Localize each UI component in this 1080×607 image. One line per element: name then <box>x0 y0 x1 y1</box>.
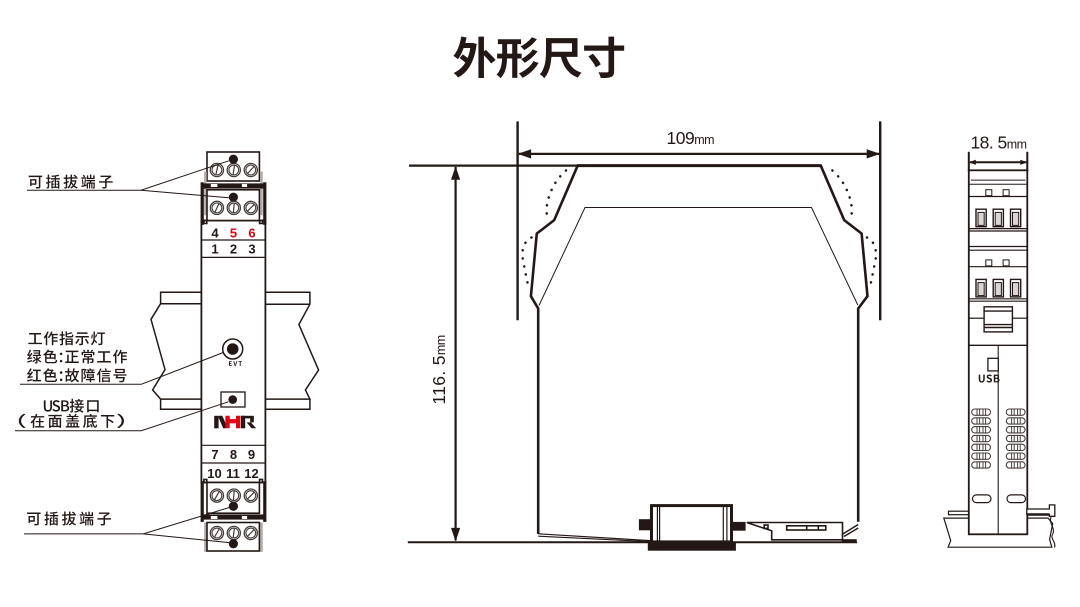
svg-text:116. 5mm: 116. 5mm <box>429 335 449 404</box>
svg-text:109mm: 109mm <box>667 128 715 148</box>
svg-text:3: 3 <box>248 242 255 257</box>
svg-text:5: 5 <box>230 225 237 240</box>
svg-text:7: 7 <box>211 447 218 462</box>
svg-text:2: 2 <box>230 242 237 257</box>
svg-text:6: 6 <box>248 225 255 240</box>
svg-text:4: 4 <box>211 225 219 240</box>
svg-text:11: 11 <box>226 466 240 481</box>
svg-text:8: 8 <box>230 447 237 462</box>
svg-text:12: 12 <box>244 466 258 481</box>
svg-text:9: 9 <box>248 447 255 462</box>
svg-text:1: 1 <box>211 242 218 257</box>
svg-text:18. 5mm: 18. 5mm <box>971 133 1027 153</box>
svg-text:10: 10 <box>207 466 221 481</box>
